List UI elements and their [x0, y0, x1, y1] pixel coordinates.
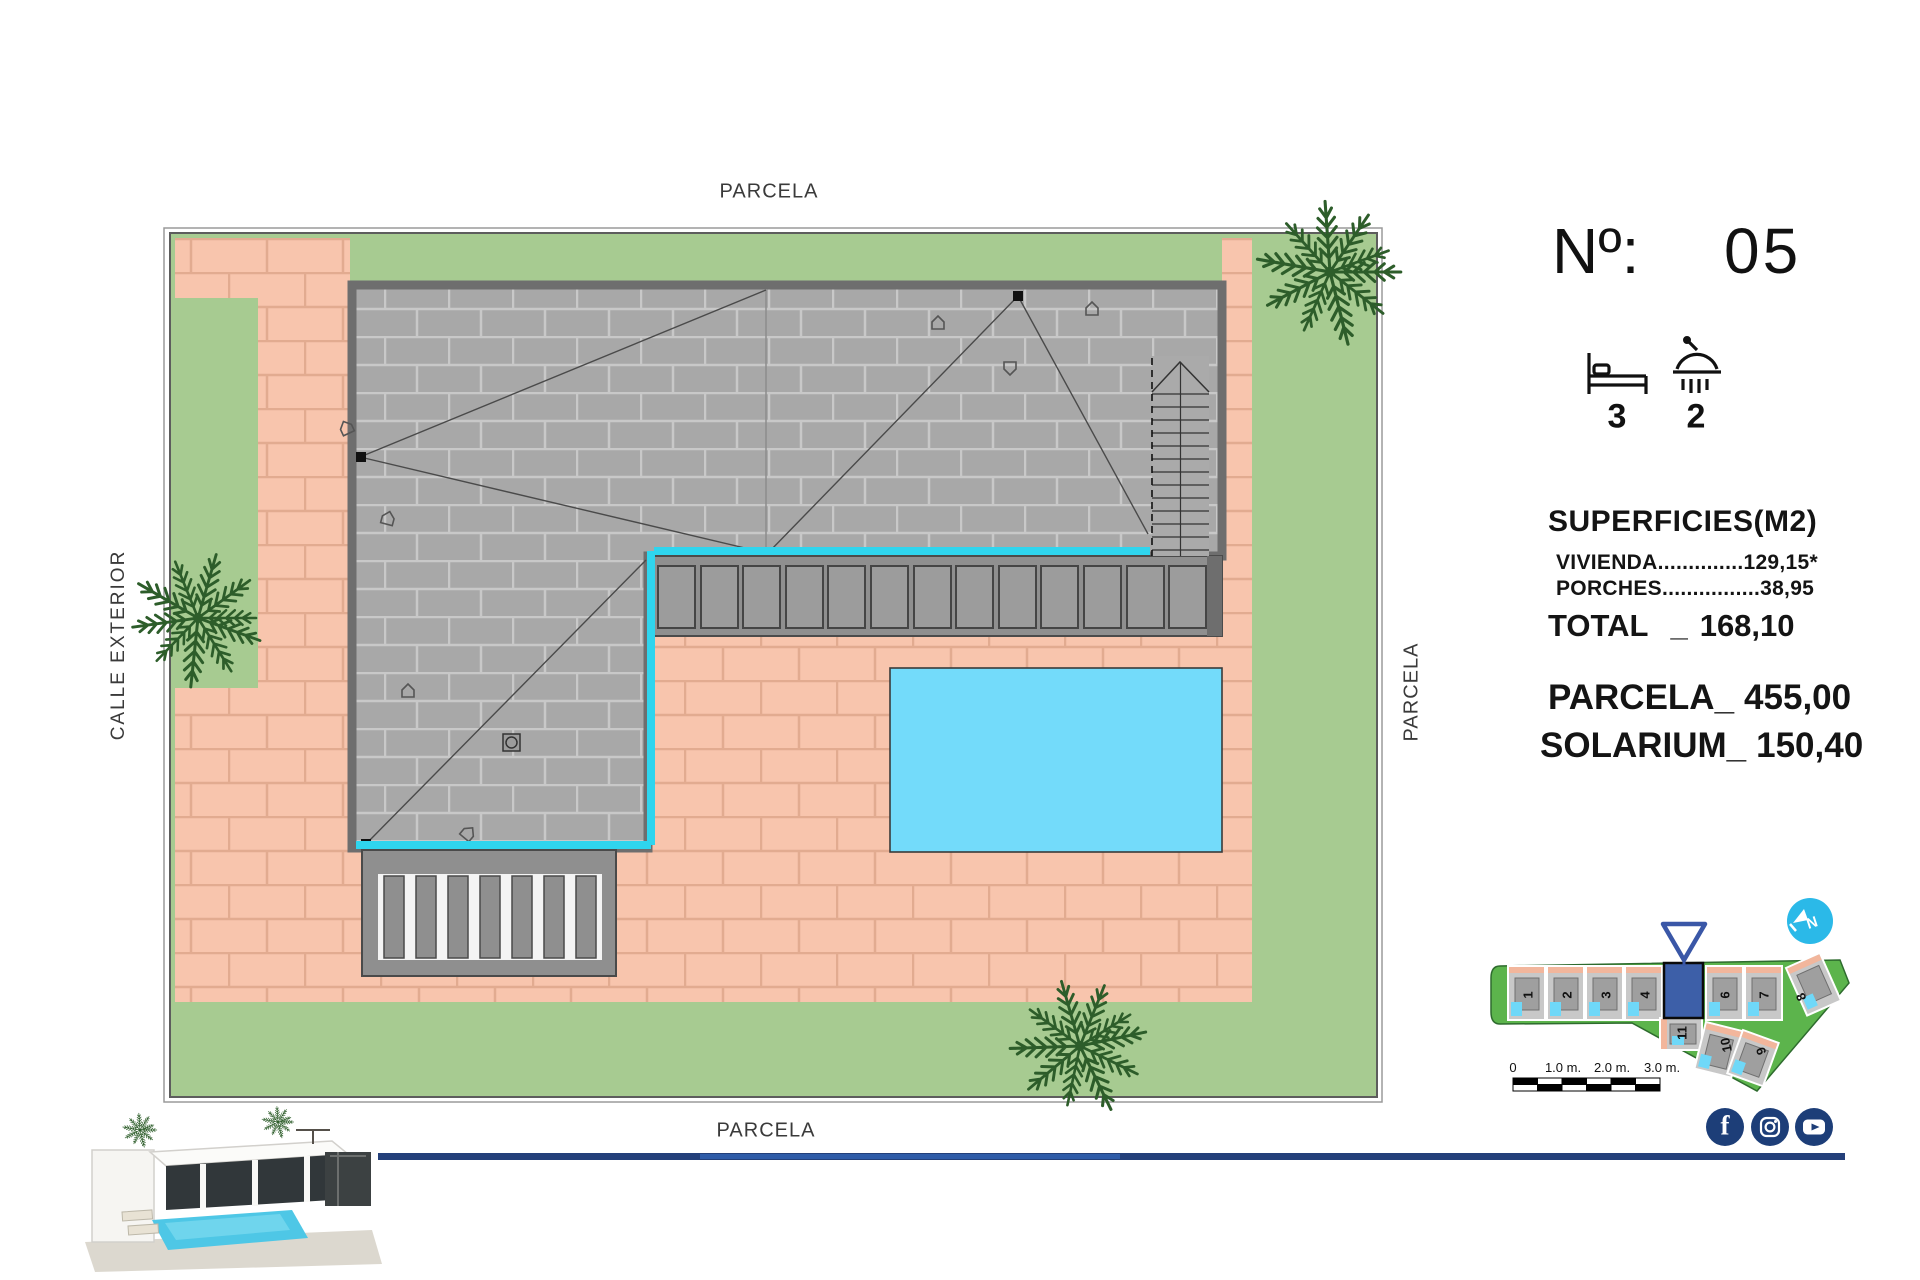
porches-line: PORCHES................38,95 [1556, 577, 1814, 601]
scale-bar-label: 2.0 m. [1594, 1060, 1630, 1075]
vivienda-line: VIVIENDA..............129,15* [1556, 551, 1818, 575]
parcela-label-top: PARCELA [720, 181, 819, 204]
mini-map-plot-number-4: 4 [1638, 991, 1653, 998]
total-row: TOTAL _ 168,10 [1548, 608, 1795, 644]
total-value: 168,10 [1700, 608, 1795, 644]
mini-map-plot-number-9: 9 [1753, 1045, 1770, 1057]
solarium-row: SOLARIUM_ 150,40 [1540, 726, 1863, 766]
solarium-area-label: SOLARIUM_ [1540, 726, 1746, 766]
superficies-title: SUPERFICIES(M2) [1548, 505, 1817, 539]
total-separator: _ [1670, 608, 1687, 644]
mini-map-plot-number-3: 3 [1599, 991, 1614, 998]
mini-map-plot-number-8: 8 [1793, 991, 1810, 1004]
solarium-area-value: 150,40 [1756, 726, 1863, 766]
parcela-row: PARCELA_ 455,00 [1548, 678, 1851, 718]
mini-map-plot-number-11: 11 [1675, 1026, 1690, 1040]
calle-exterior-label: CALLE EXTERIOR [108, 550, 130, 741]
parcela-label-right: PARCELA [1401, 643, 1424, 742]
mini-map-plot-number-2: 2 [1560, 991, 1575, 998]
mini-map-plot-number-7: 7 [1757, 991, 1772, 998]
mini-map-plot-number-10: 10 [1717, 1036, 1735, 1053]
parcela-label-bottom: PARCELA [717, 1120, 816, 1143]
mini-map-plot-number-6: 6 [1718, 991, 1733, 998]
parcela-area-value: 455,00 [1744, 678, 1851, 718]
mini-map-plot-number-1: 1 [1521, 991, 1536, 998]
compass-north-letter: N [1804, 913, 1820, 933]
facebook-glyph: f [1721, 1110, 1730, 1141]
scale-bar-label: 0 [1509, 1060, 1516, 1075]
plot-number-label: Nº: [1552, 214, 1639, 288]
scale-bar-label: 3.0 m. [1644, 1060, 1680, 1075]
scale-bar-label: 1.0 m. [1545, 1060, 1581, 1075]
plot-number-value: 05 [1724, 214, 1801, 288]
parcela-area-label: PARCELA_ [1548, 678, 1734, 718]
bathrooms-count: 2 [1687, 398, 1706, 437]
total-label: TOTAL [1548, 608, 1648, 644]
bedrooms-count: 3 [1608, 398, 1627, 437]
